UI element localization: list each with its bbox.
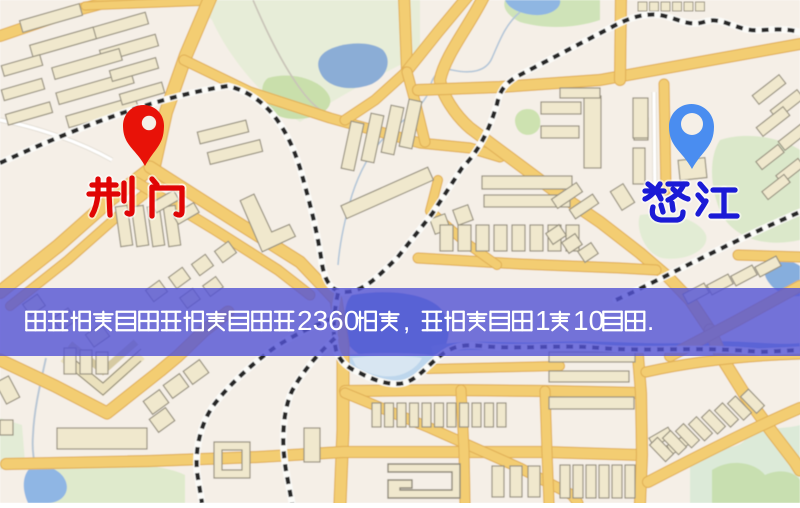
svg-text:2360: 2360 bbox=[297, 305, 359, 336]
svg-text:,: , bbox=[403, 306, 410, 336]
svg-text:10: 10 bbox=[573, 305, 604, 336]
svg-text:.: . bbox=[647, 306, 654, 336]
svg-text:1: 1 bbox=[535, 305, 551, 336]
